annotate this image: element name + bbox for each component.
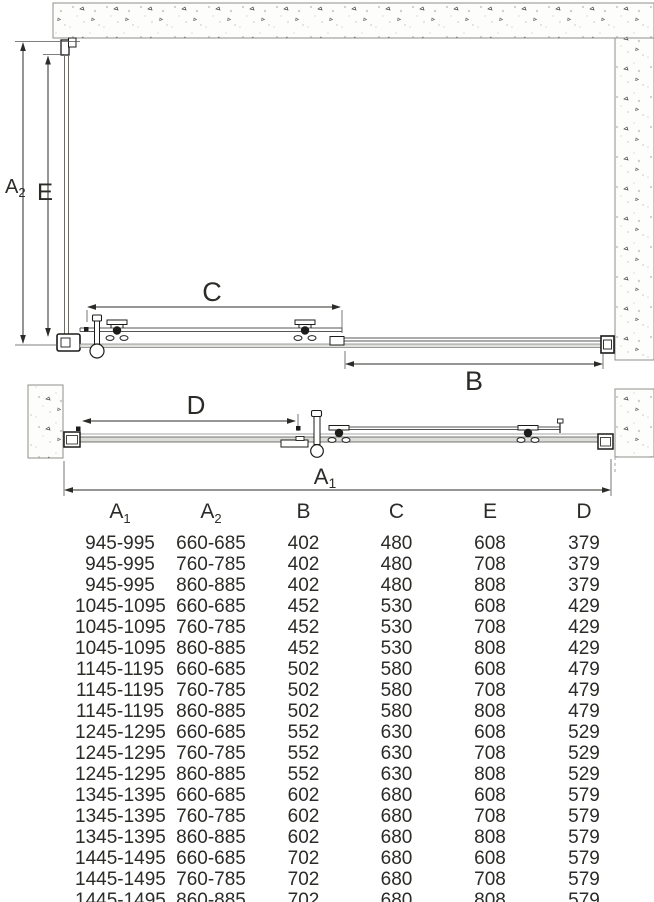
table-row: 1345-1395 860-885 602 680 808 579	[75, 827, 631, 848]
table-cell: 702	[257, 890, 350, 902]
table-cell: 579	[537, 827, 631, 848]
roller-icon	[294, 320, 316, 340]
table-row: 945-995 860-885 402 480 808 379	[75, 575, 631, 596]
table-row: 1245-1295 760-785 552 630 708 529	[75, 743, 631, 764]
front-view: D A1	[28, 385, 654, 496]
table-cell: 660-685	[165, 659, 257, 680]
table-cell: 808	[443, 764, 537, 785]
table-cell: 608	[443, 722, 537, 743]
table-cell: 630	[350, 764, 443, 785]
table-cell: 680	[350, 785, 443, 806]
dim-label-c: C	[202, 277, 222, 307]
table-cell: 680	[350, 848, 443, 869]
table-cell: 708	[443, 743, 537, 764]
dimension-a1: A1	[64, 459, 611, 496]
table-cell: 708	[443, 617, 537, 638]
table-cell: 1445-1495	[75, 848, 165, 869]
table-cell: 808	[443, 890, 537, 902]
panel-band	[65, 437, 612, 442]
table-cell: 452	[257, 596, 350, 617]
table-cell: 760-785	[165, 806, 257, 827]
table-cell: 529	[537, 764, 631, 785]
table-cell: 708	[443, 806, 537, 827]
column-header-d: D	[537, 498, 631, 533]
bolt-icon	[84, 327, 89, 332]
bolt-icon	[76, 427, 81, 432]
table-cell: 379	[537, 575, 631, 596]
column-header-e: E	[443, 498, 537, 533]
table-cell: 1445-1495	[75, 890, 165, 902]
table-cell: 479	[537, 701, 631, 722]
table-cell: 702	[257, 848, 350, 869]
table-cell: 945-995	[75, 554, 165, 575]
table-cell: 1045-1095	[75, 596, 165, 617]
wall-profile-top	[61, 38, 76, 55]
wall-profile-left	[64, 432, 80, 447]
table-row: 1045-1095 860-885 452 530 808 429	[75, 638, 631, 659]
table-cell: 708	[443, 680, 537, 701]
table-row: 1145-1195 760-785 502 580 708 479	[75, 680, 631, 701]
table-cell: 579	[537, 785, 631, 806]
table-cell: 608	[443, 533, 537, 554]
table-cell: 760-785	[165, 554, 257, 575]
table-cell: 660-685	[165, 533, 257, 554]
table-cell: 808	[443, 575, 537, 596]
dimension-e: E	[37, 55, 64, 337]
table-cell: 680	[350, 806, 443, 827]
table-cell: 579	[537, 806, 631, 827]
table-cell: 608	[443, 659, 537, 680]
table-cell: 660-685	[165, 785, 257, 806]
technical-drawing: A2 E C B	[0, 0, 654, 500]
wall-top	[53, 3, 654, 38]
table-cell: 1345-1395	[75, 785, 165, 806]
table-cell: 602	[257, 806, 350, 827]
table-cell: 860-885	[165, 638, 257, 659]
dimension-d: D	[83, 390, 301, 431]
table-cell: 529	[537, 743, 631, 764]
table-cell: 1345-1395	[75, 806, 165, 827]
table-cell: 808	[443, 827, 537, 848]
table-cell: 552	[257, 764, 350, 785]
table-cell: 1345-1395	[75, 827, 165, 848]
table-cell: 429	[537, 638, 631, 659]
dimension-b: B	[345, 351, 603, 396]
wall-right	[615, 38, 654, 360]
table-cell: 760-785	[165, 617, 257, 638]
dim-label-b: B	[465, 366, 483, 396]
table-cell: 602	[257, 785, 350, 806]
table-cell: 1145-1195	[75, 701, 165, 722]
roller-icon	[106, 320, 128, 340]
table-row: 1445-1495 760-785 702 680 708 579	[75, 869, 631, 890]
table-cell: 630	[350, 722, 443, 743]
table-cell: 429	[537, 596, 631, 617]
table-cell: 608	[443, 785, 537, 806]
table-row: 1345-1395 760-785 602 680 708 579	[75, 806, 631, 827]
table-cell: 808	[443, 638, 537, 659]
table-cell: 760-785	[165, 680, 257, 701]
table-cell: 530	[350, 617, 443, 638]
table-row: 1245-1295 660-685 552 630 608 529	[75, 722, 631, 743]
dim-label-a1: A1	[314, 464, 337, 491]
table-cell: 580	[350, 680, 443, 701]
table-cell: 480	[350, 575, 443, 596]
table-cell: 860-885	[165, 890, 257, 902]
table-cell: 502	[257, 701, 350, 722]
table-cell: 530	[350, 596, 443, 617]
table-cell: 529	[537, 722, 631, 743]
column-header-b: B	[257, 498, 350, 533]
table-cell: 1045-1095	[75, 638, 165, 659]
table-cell: 1245-1295	[75, 743, 165, 764]
table-cell: 480	[350, 554, 443, 575]
column-header-c: C	[350, 498, 443, 533]
table-row: 1145-1195 660-685 502 580 608 479	[75, 659, 631, 680]
table-cell: 580	[350, 701, 443, 722]
wall-block-right	[615, 389, 654, 457]
table-cell: 552	[257, 722, 350, 743]
table-cell: 402	[257, 575, 350, 596]
table-cell: 1145-1195	[75, 680, 165, 701]
table-cell: 702	[257, 869, 350, 890]
table-cell: 379	[537, 554, 631, 575]
table-cell: 530	[350, 638, 443, 659]
table-cell: 660-685	[165, 596, 257, 617]
fixed-panel	[332, 338, 601, 341]
wall-profile-right	[598, 434, 613, 449]
table-cell: 402	[257, 554, 350, 575]
table-row: 1445-1495 660-685 702 680 608 579	[75, 848, 631, 869]
panel-overlap-bracket	[330, 337, 344, 346]
table-cell: 760-785	[165, 869, 257, 890]
table-cell: 608	[443, 596, 537, 617]
table-cell: 552	[257, 743, 350, 764]
dim-label-e: E	[37, 179, 53, 206]
table-cell: 502	[257, 680, 350, 701]
table-cell: 579	[537, 890, 631, 902]
corner-profile	[57, 334, 80, 351]
dim-label-a2: A2	[5, 176, 26, 200]
column-header-a1: A1	[75, 498, 165, 533]
table-cell: 660-685	[165, 848, 257, 869]
table-cell: 860-885	[165, 701, 257, 722]
table-cell: 1245-1295	[75, 764, 165, 785]
plan-view: A2 E C B	[5, 3, 654, 396]
table-cell: 480	[350, 533, 443, 554]
table-cell: 1145-1195	[75, 659, 165, 680]
table-cell: 680	[350, 869, 443, 890]
table-cell: 660-685	[165, 722, 257, 743]
table-row: 1445-1495 860-885 702 680 808 579	[75, 890, 631, 902]
table-row: 945-995 660-685 402 480 608 379	[75, 533, 631, 554]
table-row: 945-995 760-785 402 480 708 379	[75, 554, 631, 575]
handle-icon	[90, 315, 104, 358]
table-cell: 630	[350, 743, 443, 764]
table-row: 1045-1095 760-785 452 530 708 429	[75, 617, 631, 638]
table-cell: 1445-1495	[75, 869, 165, 890]
table-row: 1045-1095 660-685 452 530 608 429	[75, 596, 631, 617]
table-cell: 602	[257, 827, 350, 848]
table-cell: 945-995	[75, 533, 165, 554]
table-cell: 708	[443, 554, 537, 575]
table-cell: 945-995	[75, 575, 165, 596]
dim-label-d: D	[187, 390, 206, 420]
table-header-row: A1 A2 B C E D	[75, 498, 631, 533]
table-cell: 479	[537, 659, 631, 680]
table-cell: 1245-1295	[75, 722, 165, 743]
table-cell: 479	[537, 680, 631, 701]
table-cell: 708	[443, 869, 537, 890]
table-row: 1245-1295 860-885 552 630 808 529	[75, 764, 631, 785]
table-cell: 579	[537, 869, 631, 890]
table-cell: 502	[257, 659, 350, 680]
table-cell: 608	[443, 848, 537, 869]
spec-table-body: 945-995 660-685 402 480 608 379 945-995 …	[75, 533, 631, 902]
table-cell: 402	[257, 533, 350, 554]
table-cell: 452	[257, 617, 350, 638]
table-row: 1145-1195 860-885 502 580 808 479	[75, 701, 631, 722]
table-cell: 760-785	[165, 743, 257, 764]
table-cell: 452	[257, 638, 350, 659]
table-cell: 860-885	[165, 575, 257, 596]
table-cell: 680	[350, 827, 443, 848]
table-cell: 379	[537, 533, 631, 554]
table-cell: 429	[537, 617, 631, 638]
table-cell: 860-885	[165, 827, 257, 848]
wall-profile-right	[601, 336, 614, 353]
column-header-a2: A2	[165, 498, 257, 533]
table-cell: 1045-1095	[75, 617, 165, 638]
side-panel-glass	[65, 56, 69, 334]
table-row: 1345-1395 660-685 602 680 608 579	[75, 785, 631, 806]
dimensions-table: A1 A2 B C E D 945-995 660-685 402 480 60…	[75, 498, 631, 902]
wall-block-left	[28, 385, 63, 458]
shower-enclosure-spec-sheet: A2 E C B	[0, 0, 654, 902]
table-cell: 808	[443, 701, 537, 722]
table-cell: 860-885	[165, 764, 257, 785]
table-cell: 579	[537, 848, 631, 869]
table-cell: 680	[350, 890, 443, 902]
table-cell: 580	[350, 659, 443, 680]
